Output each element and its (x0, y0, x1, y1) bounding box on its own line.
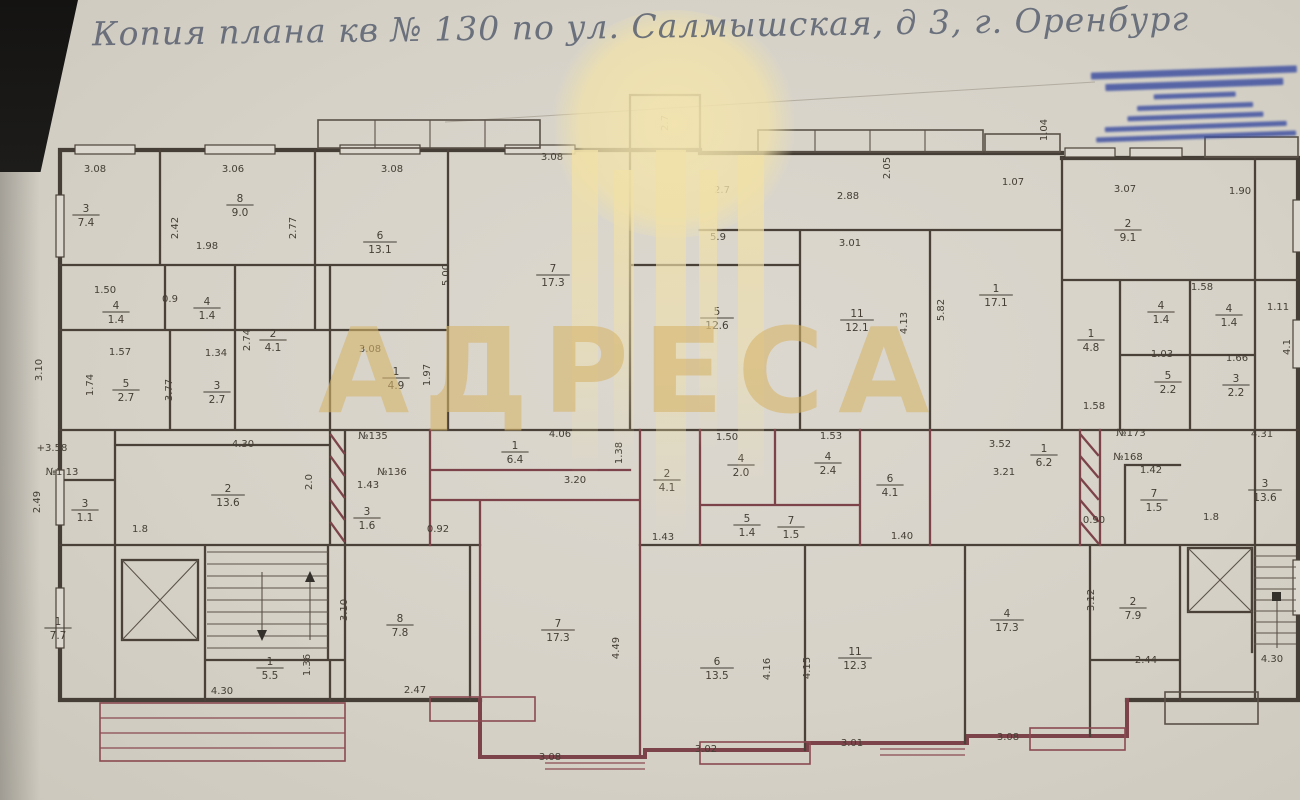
svg-text:3.21: 3.21 (993, 467, 1015, 478)
svg-text:2.88: 2.88 (837, 191, 859, 202)
svg-text:4.1: 4.1 (1282, 339, 1293, 355)
crease-line (445, 82, 1095, 122)
svg-text:3.10: 3.10 (34, 359, 45, 381)
svg-text:3.10: 3.10 (339, 599, 350, 621)
svg-text:3.08: 3.08 (541, 152, 563, 163)
svg-text:№1.13: №1.13 (46, 467, 79, 478)
svg-text:9.1: 9.1 (1120, 232, 1137, 244)
svg-text:7: 7 (555, 618, 562, 630)
svg-text:7.8: 7.8 (392, 627, 409, 639)
svg-text:9.0: 9.0 (232, 207, 249, 219)
svg-text:1.40: 1.40 (891, 531, 913, 542)
svg-text:1.11: 1.11 (1267, 302, 1289, 313)
svg-text:11: 11 (850, 308, 863, 320)
svg-text:3.52: 3.52 (989, 439, 1011, 450)
svg-text:7.9: 7.9 (1125, 610, 1142, 622)
svg-text:1.90: 1.90 (1229, 186, 1251, 197)
elevator-shafts (122, 548, 1252, 640)
svg-text:3.08: 3.08 (84, 164, 106, 175)
svg-text:8: 8 (237, 193, 244, 205)
stamp-text-line (1127, 111, 1263, 121)
svg-text:5.5: 5.5 (262, 670, 279, 682)
svg-text:+3.58: +3.58 (37, 443, 68, 454)
svg-text:1.50: 1.50 (94, 285, 116, 296)
svg-text:8: 8 (397, 613, 404, 625)
stamp-text-line (1091, 65, 1297, 79)
svg-text:13.6: 13.6 (1253, 492, 1277, 504)
svg-text:1.04: 1.04 (1039, 119, 1050, 141)
svg-text:17.3: 17.3 (995, 622, 1018, 634)
svg-text:1.4: 1.4 (199, 310, 216, 322)
svg-text:1.43: 1.43 (652, 532, 674, 543)
svg-text:1.74: 1.74 (85, 374, 96, 396)
svg-text:2.2: 2.2 (1160, 384, 1177, 396)
svg-text:2: 2 (1130, 596, 1137, 608)
svg-text:6.2: 6.2 (1036, 457, 1053, 469)
svg-text:3: 3 (364, 506, 371, 518)
svg-text:1.34: 1.34 (205, 348, 227, 359)
svg-text:№173: №173 (1116, 428, 1146, 439)
svg-text:3.08: 3.08 (997, 732, 1019, 743)
svg-text:5.9: 5.9 (710, 232, 726, 243)
svg-text:7.4: 7.4 (78, 217, 95, 229)
svg-text:2.47: 2.47 (404, 685, 426, 696)
svg-text:5: 5 (1165, 370, 1172, 382)
svg-text:2.44: 2.44 (1135, 655, 1157, 666)
windows (56, 145, 1300, 648)
scanned-floor-plan-photo: 3.083.063.083.082.72.881.073.071.901.981… (0, 0, 1300, 800)
svg-text:1.38: 1.38 (614, 442, 625, 464)
svg-text:4.30: 4.30 (211, 686, 233, 697)
svg-text:5: 5 (744, 513, 751, 525)
svg-text:7.7: 7.7 (50, 630, 67, 642)
svg-text:1.4: 1.4 (1153, 314, 1170, 326)
svg-text:3.12: 3.12 (1086, 589, 1097, 611)
svg-text:2.77: 2.77 (288, 217, 299, 239)
svg-text:1.57: 1.57 (109, 347, 131, 358)
svg-text:1: 1 (993, 283, 1000, 295)
svg-text:17.3: 17.3 (541, 277, 564, 289)
svg-text:12.3: 12.3 (843, 660, 866, 672)
svg-text:3.08: 3.08 (381, 164, 403, 175)
svg-text:2.05: 2.05 (882, 157, 893, 179)
svg-text:13.5: 13.5 (705, 670, 728, 682)
svg-text:1.97: 1.97 (422, 364, 433, 386)
svg-text:4: 4 (113, 300, 120, 312)
svg-text:2.7: 2.7 (118, 392, 135, 404)
svg-text:2: 2 (270, 328, 277, 340)
svg-text:1.5: 1.5 (783, 529, 800, 541)
svg-text:1.43: 1.43 (357, 480, 379, 491)
svg-text:3.01: 3.01 (841, 738, 863, 749)
svg-text:4.1: 4.1 (659, 482, 676, 494)
svg-text:4: 4 (1226, 303, 1233, 315)
svg-text:1.8: 1.8 (1203, 512, 1219, 523)
svg-text:№135: №135 (358, 431, 388, 442)
svg-text:11: 11 (848, 646, 861, 658)
svg-text:№168: №168 (1113, 452, 1143, 463)
svg-text:4.15: 4.15 (802, 657, 813, 679)
svg-text:4.16: 4.16 (762, 658, 773, 680)
stamp-text-line (1096, 131, 1296, 143)
svg-text:3: 3 (82, 498, 89, 510)
svg-text:1: 1 (1041, 443, 1048, 455)
svg-text:1.5: 1.5 (1146, 502, 1163, 514)
svg-text:1.50: 1.50 (716, 432, 738, 443)
svg-text:4: 4 (1004, 608, 1011, 620)
svg-text:3.20: 3.20 (564, 475, 586, 486)
svg-text:1.8: 1.8 (132, 524, 148, 535)
svg-text:6: 6 (887, 473, 894, 485)
svg-text:0.90: 0.90 (1083, 515, 1105, 526)
svg-text:3.01: 3.01 (839, 238, 861, 249)
svg-text:3.07: 3.07 (1114, 184, 1136, 195)
svg-text:2.7: 2.7 (209, 394, 226, 406)
svg-text:2.4: 2.4 (820, 465, 837, 477)
svg-text:17.3: 17.3 (546, 632, 569, 644)
svg-text:1.4: 1.4 (1221, 317, 1238, 329)
svg-text:4: 4 (204, 296, 211, 308)
svg-text:1: 1 (267, 656, 274, 668)
svg-text:3.08: 3.08 (359, 344, 381, 355)
svg-text:6: 6 (714, 656, 721, 668)
svg-text:3: 3 (1233, 373, 1240, 385)
svg-text:4.13: 4.13 (899, 312, 910, 334)
svg-text:3.08: 3.08 (539, 752, 561, 763)
svg-text:5: 5 (123, 378, 130, 390)
svg-text:3.02: 3.02 (695, 744, 717, 755)
svg-text:1.66: 1.66 (1226, 353, 1248, 364)
ink-stamp (1090, 54, 1299, 153)
svg-text:7: 7 (1151, 488, 1158, 500)
svg-text:1.98: 1.98 (196, 241, 218, 252)
stamp-text-line (1106, 78, 1283, 91)
svg-text:13.1: 13.1 (368, 244, 391, 256)
svg-text:№136: №136 (377, 467, 407, 478)
svg-text:7: 7 (788, 515, 795, 527)
svg-text:1.42: 1.42 (1140, 465, 1162, 476)
svg-text:1.53: 1.53 (820, 431, 842, 442)
svg-text:4.49: 4.49 (611, 637, 622, 659)
interior-walls (60, 95, 1298, 757)
svg-text:0.92: 0.92 (427, 524, 449, 535)
svg-text:2.49: 2.49 (32, 491, 43, 513)
svg-text:6: 6 (377, 230, 384, 242)
svg-text:3: 3 (83, 203, 90, 215)
svg-text:6.4: 6.4 (507, 454, 524, 466)
svg-text:1.4: 1.4 (108, 314, 125, 326)
svg-text:2: 2 (664, 468, 671, 480)
svg-text:1.58: 1.58 (1083, 401, 1105, 412)
svg-text:2.42: 2.42 (170, 217, 181, 239)
svg-text:1.07: 1.07 (1002, 177, 1024, 188)
svg-text:2.0: 2.0 (304, 474, 315, 490)
svg-text:3: 3 (1262, 478, 1269, 490)
svg-text:4.31: 4.31 (1251, 429, 1273, 440)
svg-text:17.1: 17.1 (984, 297, 1007, 309)
svg-text:1: 1 (1088, 328, 1095, 340)
svg-text:2.0: 2.0 (733, 467, 750, 479)
svg-text:4.30: 4.30 (232, 439, 254, 450)
svg-text:1: 1 (55, 616, 62, 628)
svg-text:5: 5 (714, 306, 721, 318)
svg-text:1.58: 1.58 (1191, 282, 1213, 293)
svg-text:4.1: 4.1 (265, 342, 282, 354)
svg-text:4.8: 4.8 (1083, 342, 1100, 354)
svg-text:4.30: 4.30 (1261, 654, 1283, 665)
svg-text:4.1: 4.1 (882, 487, 899, 499)
svg-text:2.7: 2.7 (714, 185, 730, 196)
svg-text:4: 4 (825, 451, 832, 463)
svg-text:4: 4 (1158, 300, 1165, 312)
svg-text:12.6: 12.6 (705, 320, 729, 332)
svg-text:1: 1 (393, 366, 400, 378)
svg-text:2.7: 2.7 (660, 115, 671, 131)
stamp-text-line (1137, 101, 1252, 110)
svg-text:1: 1 (512, 440, 519, 452)
svg-text:7: 7 (550, 263, 557, 275)
svg-text:3: 3 (214, 380, 221, 392)
svg-text:1.6: 1.6 (359, 520, 376, 532)
svg-text:4.06: 4.06 (549, 429, 571, 440)
svg-text:0.9: 0.9 (162, 294, 178, 305)
svg-text:1.4: 1.4 (739, 527, 756, 539)
plan-labels: 3.083.063.083.082.72.881.073.071.901.981… (32, 115, 1293, 763)
stamp-text-line (1153, 92, 1236, 100)
svg-text:3.77: 3.77 (164, 379, 175, 401)
svg-text:1.1: 1.1 (77, 512, 94, 524)
stamp-text-line (1105, 121, 1286, 132)
svg-text:4: 4 (738, 453, 745, 465)
svg-text:2: 2 (1125, 218, 1132, 230)
svg-text:5.82: 5.82 (936, 299, 947, 321)
svg-text:2.74: 2.74 (242, 329, 253, 351)
svg-text:2.2: 2.2 (1228, 387, 1245, 399)
svg-text:12.1: 12.1 (845, 322, 868, 334)
svg-text:13.6: 13.6 (216, 497, 240, 509)
svg-text:4.9: 4.9 (388, 380, 405, 392)
svg-text:5.00: 5.00 (441, 264, 452, 286)
svg-text:3.06: 3.06 (222, 164, 244, 175)
svg-text:1.03: 1.03 (1151, 349, 1173, 360)
svg-text:1.36: 1.36 (302, 654, 313, 676)
svg-text:2: 2 (225, 483, 232, 495)
